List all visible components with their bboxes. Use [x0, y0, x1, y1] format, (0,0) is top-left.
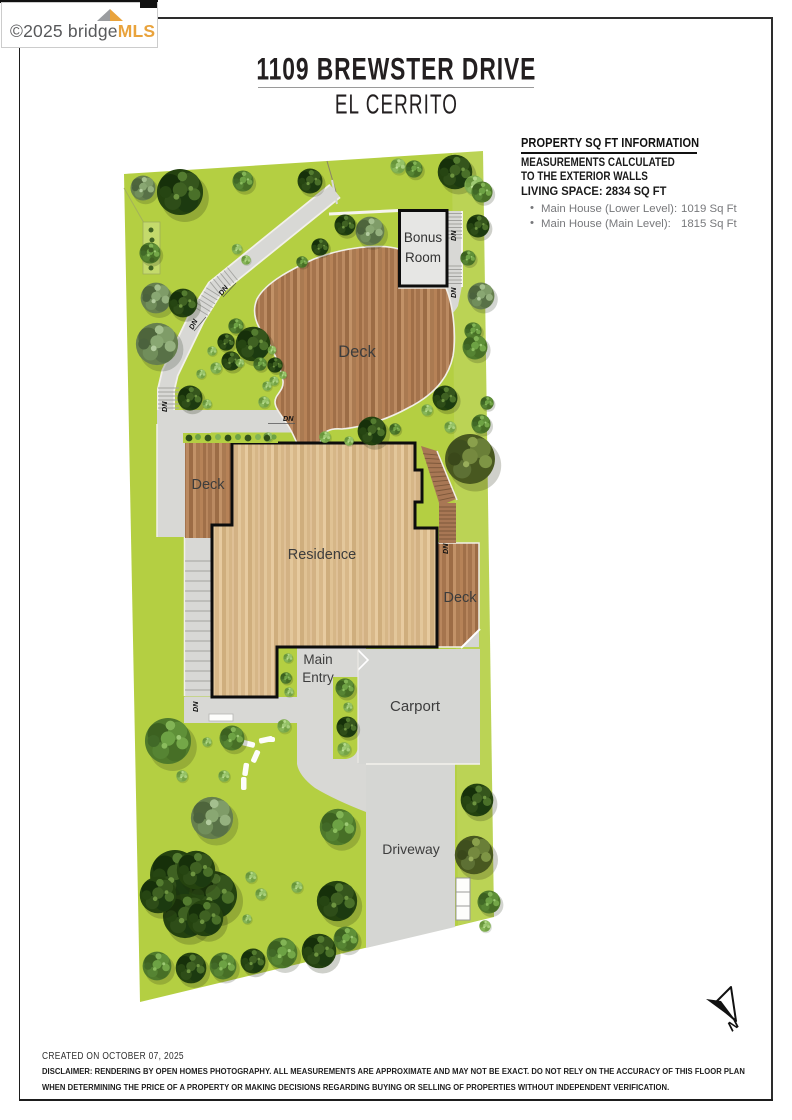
- svg-text:Bonus: Bonus: [404, 230, 443, 245]
- svg-text:Deck: Deck: [443, 590, 477, 606]
- svg-text:Deck: Deck: [191, 477, 225, 493]
- svg-text:Driveway: Driveway: [382, 841, 440, 857]
- svg-text:Residence: Residence: [288, 547, 357, 563]
- svg-text:N: N: [724, 1015, 743, 1034]
- svg-text:DN: DN: [191, 701, 200, 712]
- svg-text:Entry: Entry: [302, 670, 334, 685]
- svg-text:DN: DN: [449, 230, 458, 241]
- svg-text:DN: DN: [283, 414, 294, 423]
- svg-text:DN: DN: [449, 287, 458, 298]
- svg-text:DN: DN: [160, 401, 169, 412]
- svg-text:Carport: Carport: [390, 698, 441, 715]
- svg-text:Main: Main: [303, 652, 332, 667]
- svg-text:Deck: Deck: [338, 343, 376, 361]
- svg-text:Room: Room: [405, 250, 441, 265]
- svg-text:DN: DN: [441, 543, 450, 554]
